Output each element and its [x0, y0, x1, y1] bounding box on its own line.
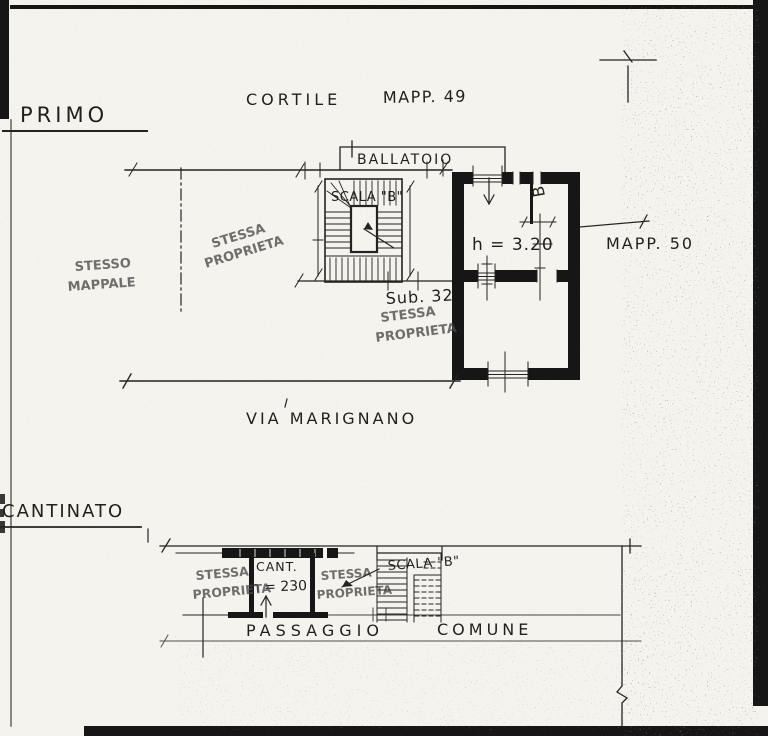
noise-overall — [0, 0, 768, 736]
scan-noise — [0, 0, 768, 736]
scanned-floor-plan-page: PRIMO CORTILE MAPP. 49 SCALA "B" — [0, 0, 768, 736]
floor-plan-drawing: PRIMO CORTILE MAPP. 49 SCALA "B" — [0, 0, 768, 736]
